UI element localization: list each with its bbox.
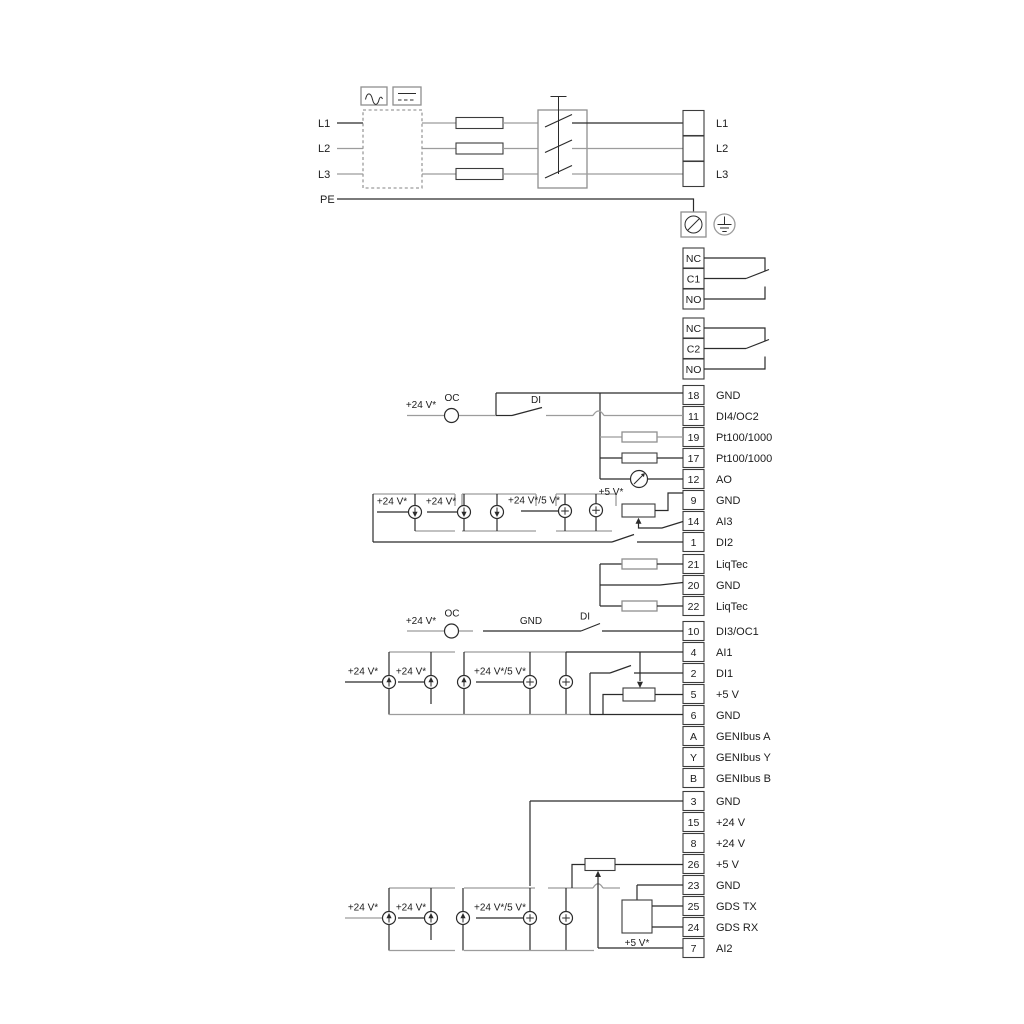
terminal-label: AI1 [716, 647, 733, 659]
terminal-number: NO [686, 364, 702, 376]
terminal-label: L3 [716, 169, 728, 181]
terminal-label: GENIbus Y [716, 752, 771, 764]
terminal-label: +24 V [716, 817, 746, 829]
di-switch-icon [581, 624, 600, 632]
oc-label: OC [445, 609, 460, 620]
terminal-number: NC [686, 323, 702, 335]
mains-terminal-block: L1 L2 L3 [683, 111, 728, 187]
terminal-label: GND [716, 796, 741, 808]
terminal-label: GDS TX [716, 901, 757, 913]
ai3-potentiometer [622, 493, 683, 528]
terminal-label: AI2 [716, 943, 733, 955]
terminal-number: 6 [691, 710, 697, 722]
terminal-label: GND [716, 710, 741, 722]
v24-label: +24 V* [396, 667, 426, 678]
current-source-icon [458, 506, 471, 519]
io-block3: 10 4 2 5 6 A Y B DI3/OC1 AI1 DI1 +5 V GN… [345, 609, 771, 788]
potentiometer-icon [585, 859, 615, 871]
terminal-number: 2 [691, 668, 697, 680]
terminal-label: L1 [716, 118, 728, 130]
terminal-label: GENIbus A [716, 731, 771, 743]
v24-label: +24 V* [406, 400, 436, 411]
terminal-number: NO [686, 294, 702, 306]
terminal-label: GND [716, 495, 741, 507]
terminal-number: 12 [688, 474, 700, 486]
potentiometer-icon [622, 504, 655, 517]
voltage-source-icon [590, 504, 603, 517]
pt100-sensor-1 [600, 432, 683, 442]
mains-section: L1 L2 L3 PE [318, 87, 735, 237]
current-source-icon [383, 676, 396, 689]
potentiometer-icon [623, 688, 655, 701]
di-switch-icon [512, 408, 542, 416]
v24-label: +24 V* [348, 667, 378, 678]
terminal-label: DI4/OC2 [716, 411, 759, 423]
terminal-number: 25 [688, 901, 700, 913]
current-source-icon [425, 676, 438, 689]
current-source-icon [458, 676, 471, 689]
terminal-label: DI1 [716, 668, 733, 680]
terminal-number: Y [690, 752, 697, 764]
v24-v5-label: +24 V*/5 V* [474, 903, 526, 914]
terminal-number: 24 [688, 922, 700, 934]
open-collector-icon [445, 624, 459, 638]
relay2-section: NC C2 NO [683, 318, 769, 379]
terminal-number: A [690, 731, 697, 743]
ai3-supply-group: +24 V* +24 V* +24 V*/5 V* +5 V* [373, 487, 623, 531]
terminal-label: DI2 [716, 537, 733, 549]
mains-pe-label: PE [320, 194, 335, 206]
terminal-label: LiqTec [716, 559, 748, 571]
gds-sensor-box [622, 900, 652, 933]
ai1-potentiometer [603, 652, 683, 715]
liqtec-wiring [600, 559, 683, 611]
voltage-source-icon [560, 912, 573, 925]
pt100-sensor-2 [600, 453, 683, 463]
terminal-label: AI3 [716, 516, 733, 528]
terminal-number: 8 [691, 838, 697, 850]
voltage-source-icon [560, 676, 573, 689]
v5-label: +5 V* [599, 487, 624, 498]
v24-label: +24 V* [348, 903, 378, 914]
relay2-contact-icon [704, 328, 769, 369]
terminal-label: AO [716, 474, 732, 486]
terminal-number: 26 [688, 859, 700, 871]
terminal-label: +5 V [716, 859, 740, 871]
terminal-label: L2 [716, 143, 728, 155]
oc-label: OC [445, 393, 460, 404]
liqtec-block: 21 20 22 LiqTec GND LiqTec [600, 555, 748, 616]
earth-ground-icon [714, 214, 735, 235]
terminal-label: +5 V [716, 689, 740, 701]
ai2-supply-group: +24 V* +24 V* +24 V*/5 V* [345, 884, 620, 951]
io-block1: 18 11 19 17 12 9 14 1 GND DI4/OC2 Pt100/… [373, 386, 772, 552]
mains-l3-label: L3 [318, 169, 330, 181]
terminal-number: 3 [691, 796, 697, 808]
terminal-number: B [690, 773, 697, 785]
relay1-section: NC C1 NO [683, 248, 769, 309]
current-source-icon [457, 912, 470, 925]
v24-v5-label: +24 V*/5 V* [508, 496, 560, 507]
v24-label: +24 V* [396, 903, 426, 914]
terminal-number: NC [686, 253, 702, 265]
di-label: DI [531, 395, 541, 406]
terminal-label: DI3/OC1 [716, 626, 759, 638]
v24-label: +24 V* [406, 616, 436, 627]
di1-switch-icon [610, 666, 631, 674]
terminal-label: GENIbus B [716, 773, 771, 785]
open-collector-icon [445, 409, 459, 423]
terminal-number: 17 [688, 453, 700, 465]
ai1-supply-group: +24 V* +24 V* +24 V*/5 V* [345, 652, 683, 715]
ao-meter-icon [600, 471, 683, 488]
terminal-number: 15 [688, 817, 700, 829]
terminal-label: GND [716, 580, 741, 592]
terminal-number: 11 [688, 411, 699, 423]
gnd3-wire [530, 801, 683, 886]
v24-label: +24 V* [426, 497, 456, 508]
pe-screw-terminal-icon [681, 212, 706, 237]
voltage-source-icon [559, 505, 572, 518]
wires-filter-to-fuses [422, 123, 456, 174]
resistor-icon [622, 432, 657, 442]
current-source-icon [425, 912, 438, 925]
mains-l2-label: L2 [318, 143, 330, 155]
terminal-label: +24 V [716, 838, 746, 850]
relay1-contact-icon [704, 258, 769, 299]
terminal-number: 23 [688, 880, 700, 892]
terminal-label: GND [716, 390, 741, 402]
terminal-number: 1 [691, 537, 697, 549]
terminal-number: 22 [688, 601, 700, 613]
gnd-label: GND [520, 616, 542, 627]
v24-v5-label: +24 V*/5 V* [474, 667, 526, 678]
resistor-icon [622, 453, 657, 463]
wiring-diagram: L1 L2 L3 PE [0, 0, 1024, 1024]
terminal-number: 7 [691, 943, 697, 955]
terminal-number: 18 [688, 390, 700, 402]
ac-symbol-icon [361, 87, 387, 105]
current-source-icon [491, 506, 504, 519]
di-label: DI [580, 612, 590, 623]
fuse-icons [456, 118, 503, 180]
resistor-icon [622, 559, 657, 569]
terminal-number: 20 [688, 580, 700, 592]
resistor-icon [622, 601, 657, 611]
terminal-number: C2 [687, 344, 701, 356]
terminal-number: 19 [688, 432, 700, 444]
dc-symbol-icon [393, 87, 421, 105]
terminal-label: Pt100/1000 [716, 453, 772, 465]
terminal-number: 10 [688, 626, 700, 638]
terminal-label: Pt100/1000 [716, 432, 772, 444]
terminal-number: 21 [688, 559, 700, 571]
terminal-number: 14 [688, 516, 700, 528]
terminal-number: C1 [687, 274, 701, 286]
mains-l1-label: L1 [318, 118, 330, 130]
terminal-label: LiqTec [716, 601, 748, 613]
current-source-icon [409, 506, 422, 519]
v24-label: +24 V* [377, 497, 407, 508]
terminal-number: 5 [691, 689, 697, 701]
gds-sensor: +5 V* [622, 885, 683, 949]
mains-filter-box [363, 110, 422, 188]
di2-switch-icon [612, 535, 634, 543]
wire-pe [337, 199, 694, 212]
terminal-label: GDS RX [716, 922, 759, 934]
terminal-label: GND [716, 880, 741, 892]
wire-hop [593, 411, 604, 416]
di3-oc1-wiring: +24 V* OC GND DI [406, 609, 683, 639]
wires-fuses-to-switch [503, 123, 538, 174]
io-block4: 3 15 8 26 23 25 24 7 GND +24 V +24 V +5 … [345, 792, 759, 958]
current-source-icon [383, 912, 396, 925]
terminal-number: 4 [691, 647, 697, 659]
terminal-number: 9 [691, 495, 697, 507]
v5-label: +5 V* [625, 938, 650, 949]
diagram-canvas: L1 L2 L3 PE [0, 0, 1024, 1024]
